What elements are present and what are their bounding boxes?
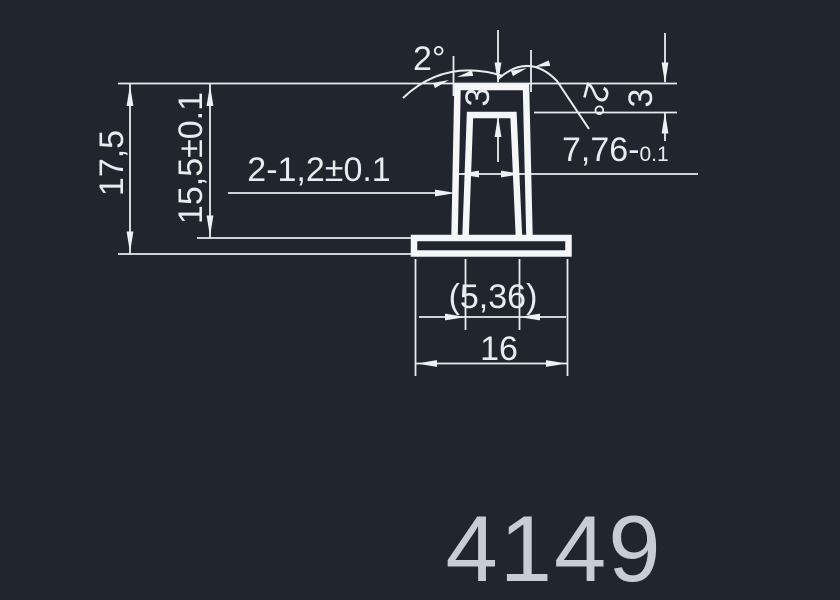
label-draft-angle-left: 2°	[413, 40, 446, 78]
arrowhead	[662, 113, 669, 134]
profile-base-flange	[414, 238, 569, 254]
label-inner-width-ref: (5,36)	[449, 278, 538, 316]
label-body-height: 15,5±0.1	[172, 92, 210, 224]
label-outer-width-value: 7,76-	[562, 131, 640, 169]
arrowhead	[416, 360, 437, 367]
label-side-thickness: 3	[622, 89, 660, 108]
part-number: 4149	[445, 496, 662, 600]
arrowhead	[127, 85, 134, 106]
label-top-thickness: 3	[459, 88, 497, 107]
cad-drawing: 17,5 15,5±0.1 2-1,2±0.1 7,76-0.1 3 3 2° …	[0, 0, 840, 600]
arrowhead	[546, 360, 567, 367]
arrowhead	[127, 232, 134, 253]
cad-viewport: 17,5 15,5±0.1 2-1,2±0.1 7,76-0.1 3 3 2° …	[0, 0, 840, 600]
label-base-width: 16	[480, 330, 518, 368]
arrowhead	[662, 63, 669, 84]
dimension-labels: 17,5 15,5±0.1 2-1,2±0.1 7,76-0.1 3 3 2° …	[93, 40, 669, 368]
arrowhead	[533, 60, 550, 69]
label-outer-width: 7,76-0.1	[562, 131, 669, 169]
label-wall-thickness: 2-1,2±0.1	[247, 151, 390, 189]
arrowhead	[495, 116, 502, 137]
label-outer-width-tol: 0.1	[640, 143, 669, 166]
label-total-height: 17,5	[93, 130, 131, 196]
